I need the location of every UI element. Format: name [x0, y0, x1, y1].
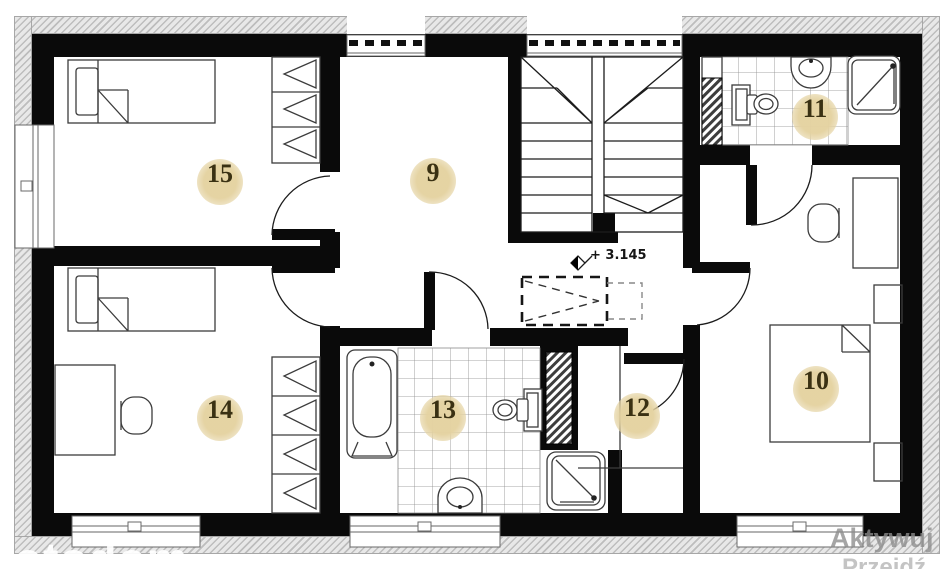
room-label-10: 10 [793, 366, 839, 412]
room-label-13: 13 [420, 395, 466, 441]
elevation-marker-text: + 3.145 [590, 248, 647, 263]
door-bath11 [746, 165, 812, 225]
shower-icon-bath11 [848, 56, 900, 114]
watermark-otodom: otodom [14, 532, 189, 569]
desk-room10 [853, 178, 898, 268]
room-label-11: 11 [792, 94, 838, 140]
watermark-aktywuj: Aktywuj [830, 523, 934, 554]
bathtub-icon [347, 350, 397, 458]
bed-room14 [68, 268, 215, 331]
nightstand-room10-lower [874, 443, 902, 481]
door-bath13 [424, 272, 488, 330]
window-kneewall-dashed-left [347, 35, 425, 56]
door-room15 [272, 176, 335, 240]
wardrobe-room15 [272, 57, 320, 163]
chair-room10 [808, 204, 839, 242]
shaft-11 [702, 57, 722, 145]
window-room15-left [15, 125, 54, 248]
elevation-marker-icon [571, 256, 592, 270]
chair-room14 [121, 397, 152, 434]
door-room14 [272, 262, 335, 327]
bed-room15 [68, 60, 215, 123]
sink-icon [438, 478, 482, 513]
window-kneewall-dashed-right [527, 35, 682, 56]
room-label-14: 14 [197, 395, 243, 441]
staircase [521, 57, 683, 232]
room-label-9: 9 [410, 158, 456, 204]
shaft-13-hatch [546, 352, 572, 444]
shower-icon [547, 452, 605, 510]
desk-room14 [55, 365, 115, 455]
window-bath13-bottom [350, 516, 500, 547]
room-label-12: 12 [614, 393, 660, 439]
attic-hatch-dashed [522, 277, 642, 325]
wardrobe-room14 [272, 357, 320, 513]
watermark-przejdz-do: Przejdź do [842, 554, 950, 569]
door-room10 [692, 262, 750, 325]
nightstand-room10-upper [874, 285, 902, 323]
plan-drawing [0, 0, 950, 569]
room-label-15: 15 [197, 159, 243, 205]
floor-plan: 15 9 11 10 14 13 12 + 3.145 otodom Aktyw… [0, 0, 950, 569]
